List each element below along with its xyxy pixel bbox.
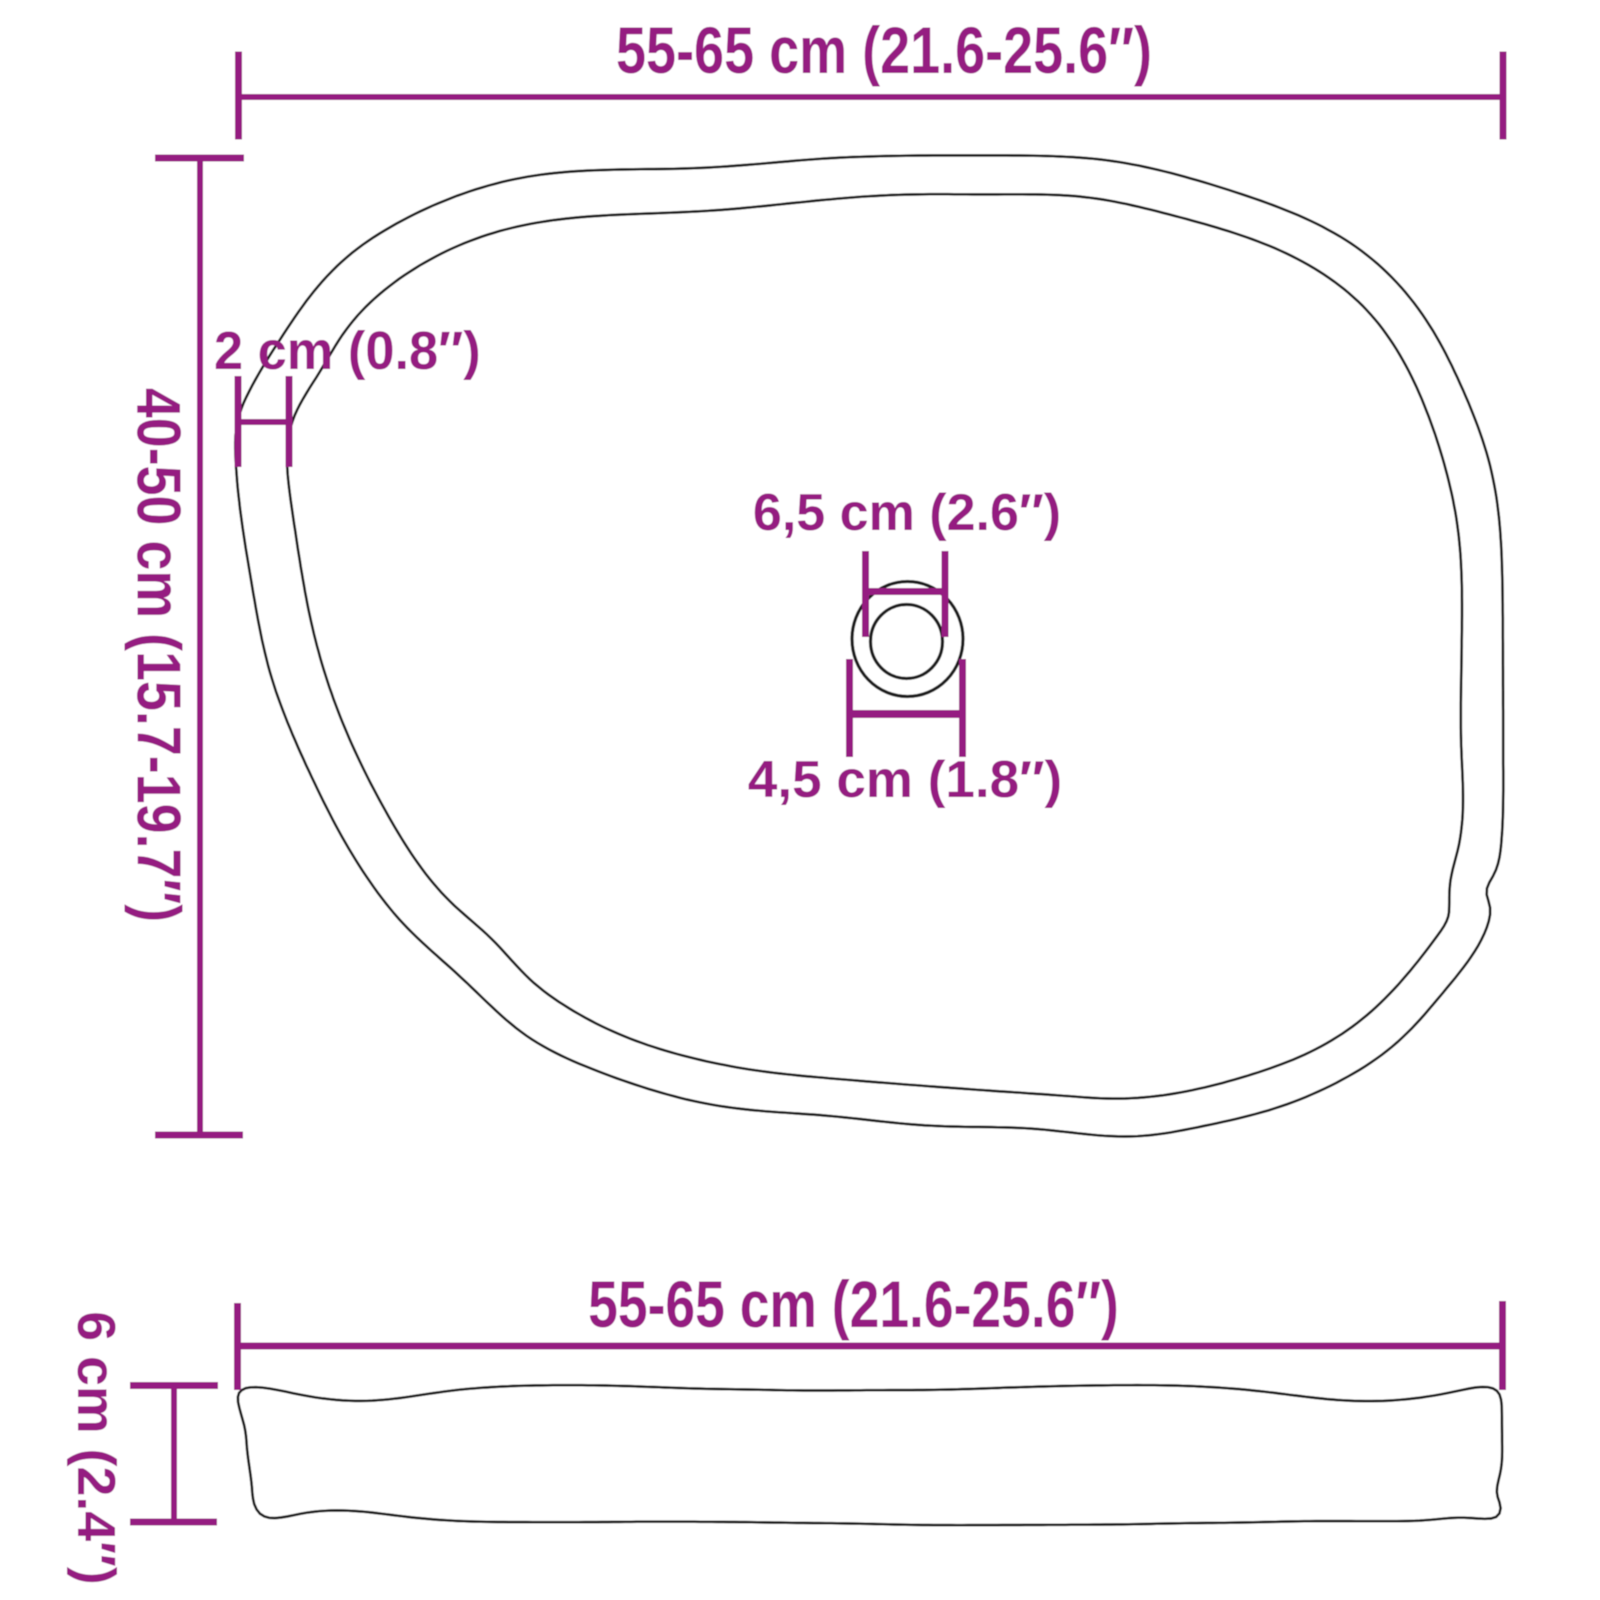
svg-text:55-65 cm (21.6-25.6″): 55-65 cm (21.6-25.6″) [588, 1268, 1119, 1342]
svg-text:6 cm (2.4″): 6 cm (2.4″) [66, 1311, 126, 1585]
svg-text:40-50 cm (15.7-19.7″): 40-50 cm (15.7-19.7″) [124, 388, 193, 922]
svg-text:4,5 cm (1.8″): 4,5 cm (1.8″) [748, 750, 1062, 808]
svg-text:55-65 cm (21.6-25.6″): 55-65 cm (21.6-25.6″) [616, 13, 1152, 87]
svg-text:2 cm (0.8″): 2 cm (0.8″) [214, 321, 481, 381]
svg-text:6,5 cm (2.6″): 6,5 cm (2.6″) [753, 484, 1061, 542]
